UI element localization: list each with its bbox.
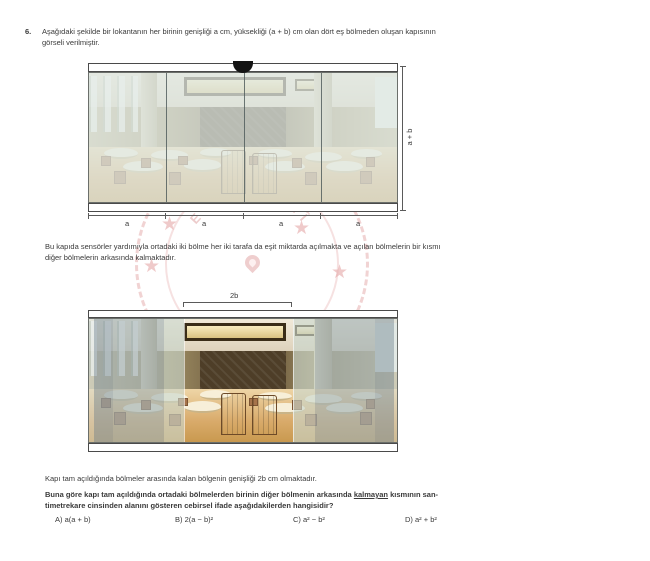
- sensor-paragraph: Bu kapıda sensörler yardımıyla ortadaki …: [45, 241, 505, 263]
- option-c-expr: a² − b²: [303, 515, 325, 524]
- question-number: 6.: [25, 26, 31, 37]
- dim-tick: [165, 213, 166, 219]
- panel-divider: [321, 73, 322, 202]
- intro-line-2: görseli verilmiştir.: [42, 37, 502, 48]
- option-c[interactable]: C) a² − b²: [293, 515, 325, 524]
- star-icon: ★: [331, 261, 348, 284]
- glass-overlap-dark-right: [375, 319, 394, 442]
- panel-width-label: a: [125, 219, 129, 228]
- dim-tick: [243, 213, 244, 219]
- closed-door-glass-wash: [89, 73, 397, 202]
- final-underlined-word: kalmayan: [354, 490, 388, 499]
- option-b-expr: 2(a − b)²: [185, 515, 214, 524]
- option-a-expr: a(a + b): [65, 515, 91, 524]
- exam-page: E T İ M İ L L Î ★ ★ ★ ★ 6. Aşağıdaki şek…: [0, 0, 650, 561]
- panel-width-label: a: [279, 219, 283, 228]
- panel-width-label: a: [202, 219, 206, 228]
- seal-arc-letter: Î: [297, 211, 311, 224]
- glass-overlap-mid-right: [315, 319, 375, 442]
- option-d-label: D): [405, 515, 413, 524]
- gap-dimension-label: 2b: [230, 291, 238, 300]
- gap-edge-right: [293, 319, 294, 442]
- back-wall-panel: [200, 351, 286, 389]
- sensor-line-2: diğer bölmelerin arkasında kalmaktadır.: [45, 252, 505, 263]
- star-icon: ★: [293, 217, 310, 240]
- glass-overlap-dark-left: [94, 319, 113, 442]
- final-question-line-1: Buna göre kapı tam açıldığında ortadaki …: [45, 489, 507, 500]
- panel-divider: [166, 73, 167, 202]
- dim-tick: [400, 66, 406, 67]
- door-bottom-rail: [88, 203, 398, 212]
- sensor-line-1: Bu kapıda sensörler yardımıyla ortadaki …: [45, 241, 505, 252]
- dim-tick: [320, 213, 321, 219]
- option-a[interactable]: A) a(a + b): [55, 515, 91, 524]
- open-door-figure: [88, 310, 398, 452]
- option-b-label: B): [175, 515, 183, 524]
- option-d[interactable]: D) a² + b²: [405, 515, 437, 524]
- intro-line-1: Aşağıdaki şekilde bir lokantanın her bir…: [42, 26, 502, 37]
- option-a-label: A): [55, 515, 63, 524]
- dim-tick: [397, 213, 398, 219]
- door-bottom-rail: [88, 443, 398, 452]
- option-b[interactable]: B) 2(a − b)²: [175, 515, 213, 524]
- gap-paragraph: Kapı tam açıldığında bölmeler arasında k…: [45, 473, 505, 484]
- foreground-chair-right: [252, 395, 277, 434]
- final-question: Buna göre kapı tam açıldığında ortadaki …: [45, 489, 507, 511]
- foreground-chair-left: [221, 393, 246, 435]
- ceiling-light-large: [184, 323, 286, 341]
- height-dimension-label: a + b: [405, 121, 417, 153]
- final-before: Buna göre kapı tam açıldığında ortadaki …: [45, 490, 354, 499]
- gap-edge-left: [184, 319, 185, 442]
- glass-single-left: [164, 319, 184, 442]
- glass-overlap-mid-left: [113, 319, 164, 442]
- restaurant-photo-open: [88, 318, 398, 443]
- option-c-label: C): [293, 515, 301, 524]
- final-after: kısmının san-: [388, 490, 438, 499]
- option-d-expr: a² + b²: [415, 515, 437, 524]
- panel-width-label: a: [356, 219, 360, 228]
- panel-divider: [244, 73, 245, 202]
- final-question-line-2: timetrekare cinsinden alanını gösteren c…: [45, 500, 507, 511]
- gap-dimension-line: [183, 302, 292, 307]
- glass-single-right: [293, 319, 315, 442]
- height-dimension-line: [402, 66, 403, 211]
- door-top-rail: [88, 310, 398, 318]
- dim-tick: [88, 213, 89, 219]
- dim-tick: [400, 210, 406, 211]
- question-intro: Aşağıdaki şekilde bir lokantanın her bir…: [42, 26, 502, 48]
- star-icon: ★: [161, 213, 178, 236]
- closed-door-figure: [88, 63, 398, 213]
- restaurant-photo-closed: [88, 72, 398, 203]
- width-dimension-line: [88, 215, 398, 216]
